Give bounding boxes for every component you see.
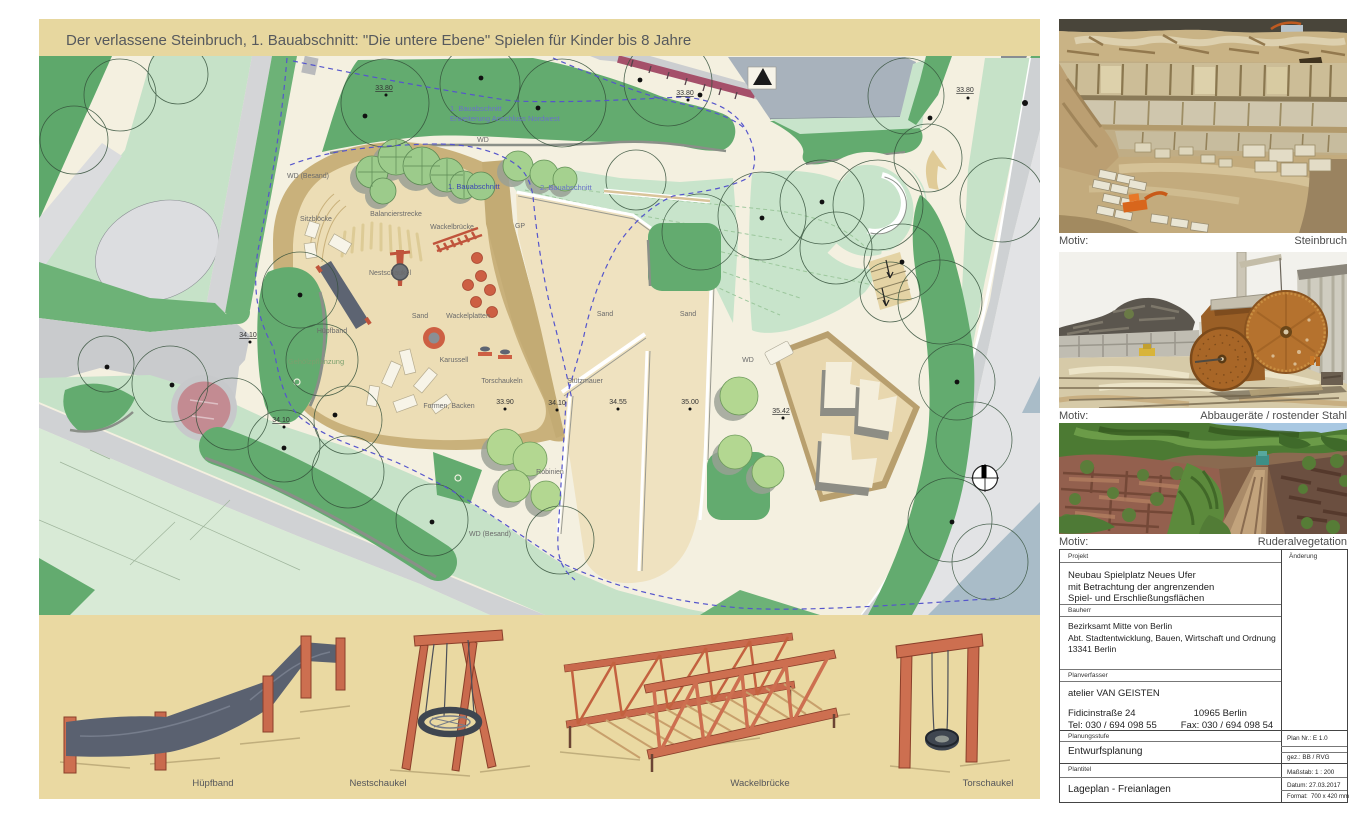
svg-text:Torschaukeln: Torschaukeln xyxy=(481,378,522,385)
svg-text:Hüpfband: Hüpfband xyxy=(192,778,233,789)
svg-text:GP: GP xyxy=(515,223,525,230)
svg-text:Nestschaukel: Nestschaukel xyxy=(369,270,411,277)
svg-text:33.80: 33.80 xyxy=(375,85,393,92)
svg-text:1. Bauabschnitt: 1. Bauabschnitt xyxy=(450,104,503,113)
svg-text:WD (Besand): WD (Besand) xyxy=(287,173,329,180)
svg-text:Wackelplatten: Wackelplatten xyxy=(446,313,490,320)
svg-text:Stützmauer: Stützmauer xyxy=(567,378,603,385)
svg-text:33.90: 33.90 xyxy=(496,399,514,406)
svg-text:Wackelbrücke: Wackelbrücke xyxy=(730,778,789,789)
svg-text:2. Bauabschnitt: 2. Bauabschnitt xyxy=(540,183,593,192)
svg-text:34.10: 34.10 xyxy=(548,400,566,407)
svg-text:WD (Besand): WD (Besand) xyxy=(469,531,511,538)
svg-text:Sand: Sand xyxy=(597,311,613,318)
svg-text:33.80: 33.80 xyxy=(956,87,974,94)
svg-text:Balancierstrecke: Balancierstrecke xyxy=(370,211,422,218)
svg-text:Nestschaukel: Nestschaukel xyxy=(349,778,406,789)
svg-text:Sand: Sand xyxy=(412,313,428,320)
svg-text:Formen, Backen: Formen, Backen xyxy=(423,403,474,410)
svg-text:WD: WD xyxy=(742,357,754,364)
svg-text:Robinien: Robinien xyxy=(536,469,564,476)
svg-text:35.42: 35.42 xyxy=(772,408,790,415)
svg-text:WD: WD xyxy=(477,137,489,144)
svg-text:Sitzblöcke: Sitzblöcke xyxy=(300,216,332,223)
svg-text:34.10: 34.10 xyxy=(239,332,257,339)
svg-text:Sand: Sand xyxy=(680,311,696,318)
svg-text:1. Bauabschnitt: 1. Bauabschnitt xyxy=(448,182,501,191)
svg-text:34.55: 34.55 xyxy=(609,399,627,406)
svg-text:33.80: 33.80 xyxy=(676,90,694,97)
svg-text:Gehölzpflanzung: Gehölzpflanzung xyxy=(288,357,344,366)
svg-text:Wackelbrücke: Wackelbrücke xyxy=(430,224,474,231)
svg-text:Erweiterung Anschluss Nordwest: Erweiterung Anschluss Nordwest xyxy=(450,114,561,123)
svg-text:Hüpfband: Hüpfband xyxy=(317,328,347,335)
svg-text:34.10: 34.10 xyxy=(272,417,290,424)
svg-text:Karussell: Karussell xyxy=(440,357,469,364)
svg-text:35.00: 35.00 xyxy=(681,399,699,406)
svg-text:Torschaukel: Torschaukel xyxy=(963,778,1014,789)
